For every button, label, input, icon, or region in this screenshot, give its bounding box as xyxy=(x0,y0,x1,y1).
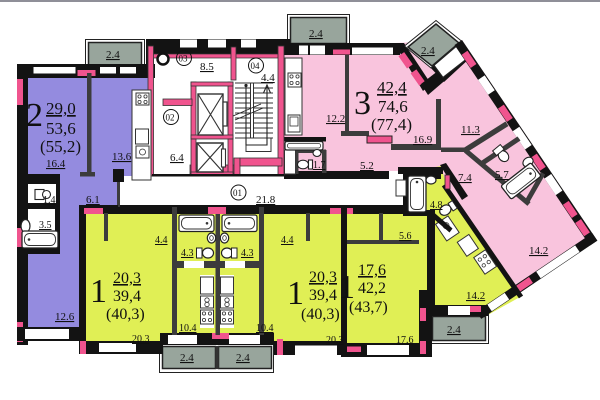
svg-text:10.4: 10.4 xyxy=(179,323,197,334)
svg-text:(77,4): (77,4) xyxy=(371,115,412,134)
svg-text:10.4: 10.4 xyxy=(256,323,274,334)
svg-text:3.5: 3.5 xyxy=(39,220,52,231)
svg-text:5.2: 5.2 xyxy=(360,160,374,172)
svg-text:39,4: 39,4 xyxy=(309,287,337,304)
svg-text:4.4: 4.4 xyxy=(261,72,275,84)
svg-text:1: 1 xyxy=(90,273,107,310)
svg-text:4.4: 4.4 xyxy=(281,235,294,246)
svg-text:11.3: 11.3 xyxy=(461,124,480,136)
svg-text:2.4: 2.4 xyxy=(180,352,194,364)
svg-text:6.1: 6.1 xyxy=(86,194,100,206)
svg-text:74,6: 74,6 xyxy=(378,97,408,116)
svg-text:2: 2 xyxy=(26,97,43,134)
svg-text:(40,3): (40,3) xyxy=(301,306,340,323)
svg-text:4.4: 4.4 xyxy=(155,235,168,246)
svg-text:4.3: 4.3 xyxy=(241,248,254,259)
svg-text:20,3: 20,3 xyxy=(113,270,141,287)
svg-text:5.6: 5.6 xyxy=(399,231,412,242)
svg-text:2.4: 2.4 xyxy=(236,352,250,364)
svg-text:(55,2): (55,2) xyxy=(40,137,81,156)
svg-text:01: 01 xyxy=(233,188,242,198)
svg-text:20,3: 20,3 xyxy=(309,269,337,286)
svg-text:5.7: 5.7 xyxy=(495,169,509,181)
svg-text:12.6: 12.6 xyxy=(55,311,75,323)
svg-text:02: 02 xyxy=(166,113,175,123)
svg-text:42,4: 42,4 xyxy=(377,78,407,97)
svg-text:04: 04 xyxy=(251,61,261,71)
svg-text:4.8: 4.8 xyxy=(430,200,443,211)
svg-text:39,4: 39,4 xyxy=(113,288,141,305)
svg-text:14.2: 14.2 xyxy=(529,245,548,257)
svg-text:20.3: 20.3 xyxy=(326,335,344,346)
svg-text:17.6: 17.6 xyxy=(396,335,414,346)
svg-text:2.4: 2.4 xyxy=(309,28,323,40)
svg-text:(43,7): (43,7) xyxy=(349,299,388,316)
svg-text:16.4: 16.4 xyxy=(46,158,66,170)
svg-text:03: 03 xyxy=(179,54,189,64)
svg-text:29,0: 29,0 xyxy=(46,99,76,118)
svg-text:2.4: 2.4 xyxy=(447,324,461,336)
svg-text:1.4: 1.4 xyxy=(43,195,56,206)
svg-text:2.4: 2.4 xyxy=(421,45,435,57)
svg-text:1.7: 1.7 xyxy=(313,160,326,171)
svg-text:4.3: 4.3 xyxy=(181,248,194,259)
svg-text:16.9: 16.9 xyxy=(413,134,433,146)
svg-text:53,6: 53,6 xyxy=(46,119,76,138)
svg-text:3: 3 xyxy=(354,85,371,122)
svg-text:8.5: 8.5 xyxy=(200,61,214,73)
svg-text:13.6: 13.6 xyxy=(112,151,132,163)
svg-text:7.4: 7.4 xyxy=(458,172,472,184)
svg-text:21.8: 21.8 xyxy=(256,194,276,206)
svg-text:2.4: 2.4 xyxy=(106,49,120,61)
svg-text:20.3: 20.3 xyxy=(132,334,150,345)
svg-text:6.4: 6.4 xyxy=(170,152,184,164)
svg-text:(40,3): (40,3) xyxy=(106,306,145,323)
svg-text:17,6: 17,6 xyxy=(358,262,386,279)
svg-text:14.2: 14.2 xyxy=(466,290,485,302)
svg-text:12.2: 12.2 xyxy=(326,113,345,125)
svg-text:42,2: 42,2 xyxy=(358,280,386,297)
